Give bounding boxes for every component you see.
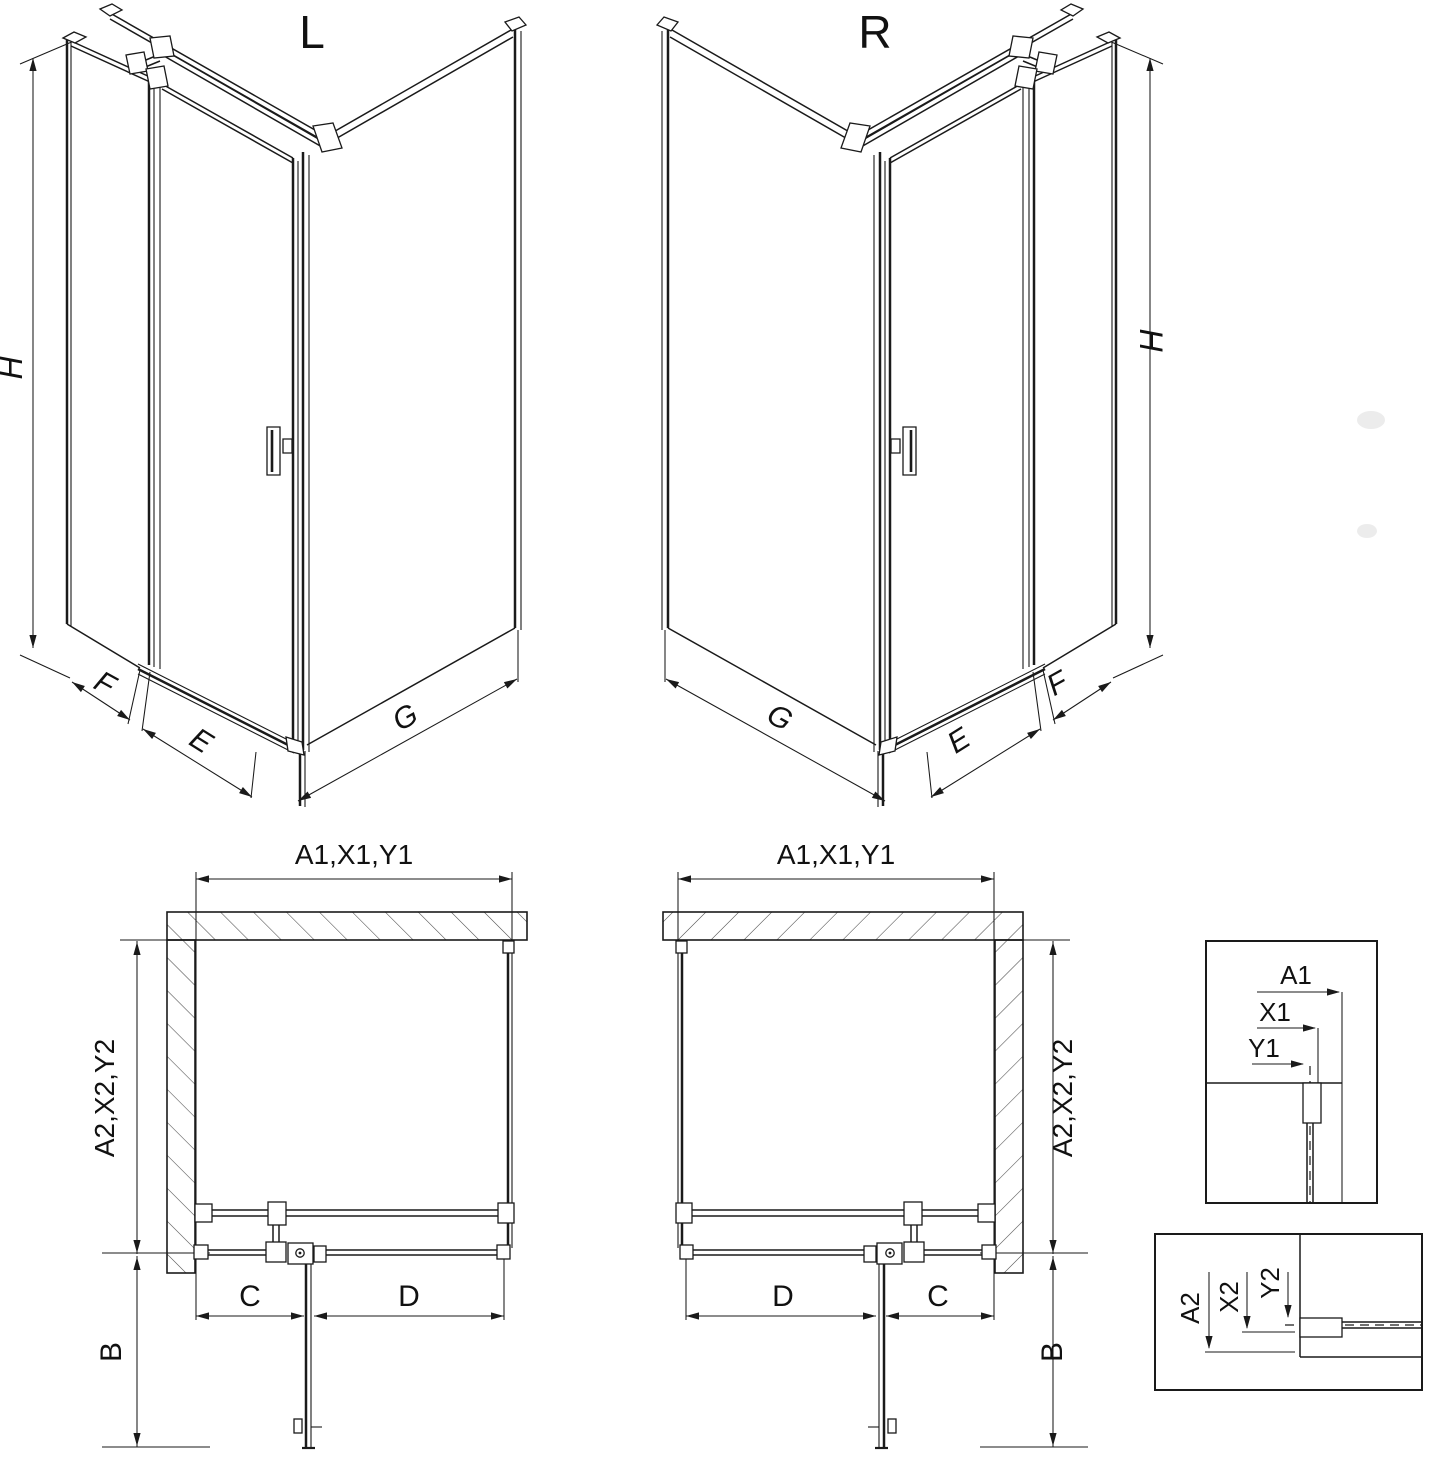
iso-r-g-label: G — [761, 698, 797, 738]
panel-clamp-2 — [146, 66, 168, 89]
door-handle — [267, 427, 292, 475]
plan-glass-and-bars — [194, 941, 514, 1448]
view-title-left: L — [299, 6, 325, 58]
wall-side-hatched — [167, 940, 195, 1273]
glass-thin-edges — [71, 31, 521, 807]
panel-clamp-1 — [126, 52, 148, 74]
plan-view-right-geometry — [663, 872, 1088, 1448]
plan-r-top-dimension-label: A1,X1,Y1 — [777, 839, 895, 870]
detail-2-wall-profile — [1300, 1318, 1342, 1337]
support-bar-end-cap — [100, 4, 122, 16]
detail-1-wall-profile — [1303, 1083, 1321, 1123]
corner-bracket — [313, 123, 342, 152]
iso-l-f-label: F — [89, 665, 122, 704]
detail-x2-label: X2 — [1214, 1281, 1244, 1313]
iso-r-e-label: E — [942, 721, 977, 760]
iso-structure — [63, 4, 526, 807]
plan-l-top-dimension-label: A1,X1,Y1 — [295, 839, 413, 870]
iso-l-height-label: H — [0, 356, 29, 380]
plan-r-d-label: D — [772, 1280, 794, 1313]
glass-thick-edges — [67, 28, 515, 806]
panel-edges — [67, 13, 515, 745]
back-wall-top-cap — [505, 17, 526, 31]
wall-top-hatched — [167, 912, 527, 940]
support-bars — [196, 1210, 498, 1255]
shower-enclosure-diagram: L H F E G R H F E G A1,X1,Y1 A2,X2,Y2 B … — [0, 0, 1430, 1460]
plan-l-d-label: D — [398, 1280, 420, 1313]
iso-view-right-geometry — [657, 4, 1163, 807]
detail-x1-label: X1 — [1259, 997, 1291, 1027]
detail-a1-label: A1 — [1280, 960, 1312, 990]
view-title-right: R — [858, 6, 891, 58]
plan-l-b-label: B — [95, 1342, 128, 1362]
fittings — [63, 4, 526, 755]
watermark-smudge — [1357, 524, 1377, 538]
iso-r-f-label: F — [1041, 664, 1074, 703]
detail-a2-label: A2 — [1175, 1292, 1205, 1324]
plan-l-c-label: C — [239, 1280, 261, 1313]
plan-view-left-geometry — [102, 872, 527, 1448]
plan-door-handle — [294, 1419, 302, 1433]
iso-l-g-label: G — [387, 698, 423, 738]
watermark-smudge — [1357, 411, 1385, 429]
iso-l-e-label: E — [184, 722, 219, 761]
iso-r-height-label: H — [1133, 328, 1169, 352]
sill-end-bracket — [286, 737, 304, 755]
plan-l-side-dimension-label: A2,X2,Y2 — [89, 1039, 120, 1157]
plan-r-c-label: C — [927, 1280, 949, 1313]
plan-r-side-dimension-label: A2,X2,Y2 — [1047, 1039, 1078, 1157]
plan-r-b-label: B — [1036, 1342, 1069, 1362]
detail-2-wall-edge — [1300, 1234, 1422, 1357]
detail-y1-label: Y1 — [1248, 1033, 1280, 1063]
detail-y2-label: Y2 — [1255, 1267, 1285, 1299]
technical-drawing-page: L H F E G R H F E G A1,X1,Y1 A2,X2,Y2 B … — [0, 0, 1430, 1460]
t-bracket — [150, 36, 174, 58]
